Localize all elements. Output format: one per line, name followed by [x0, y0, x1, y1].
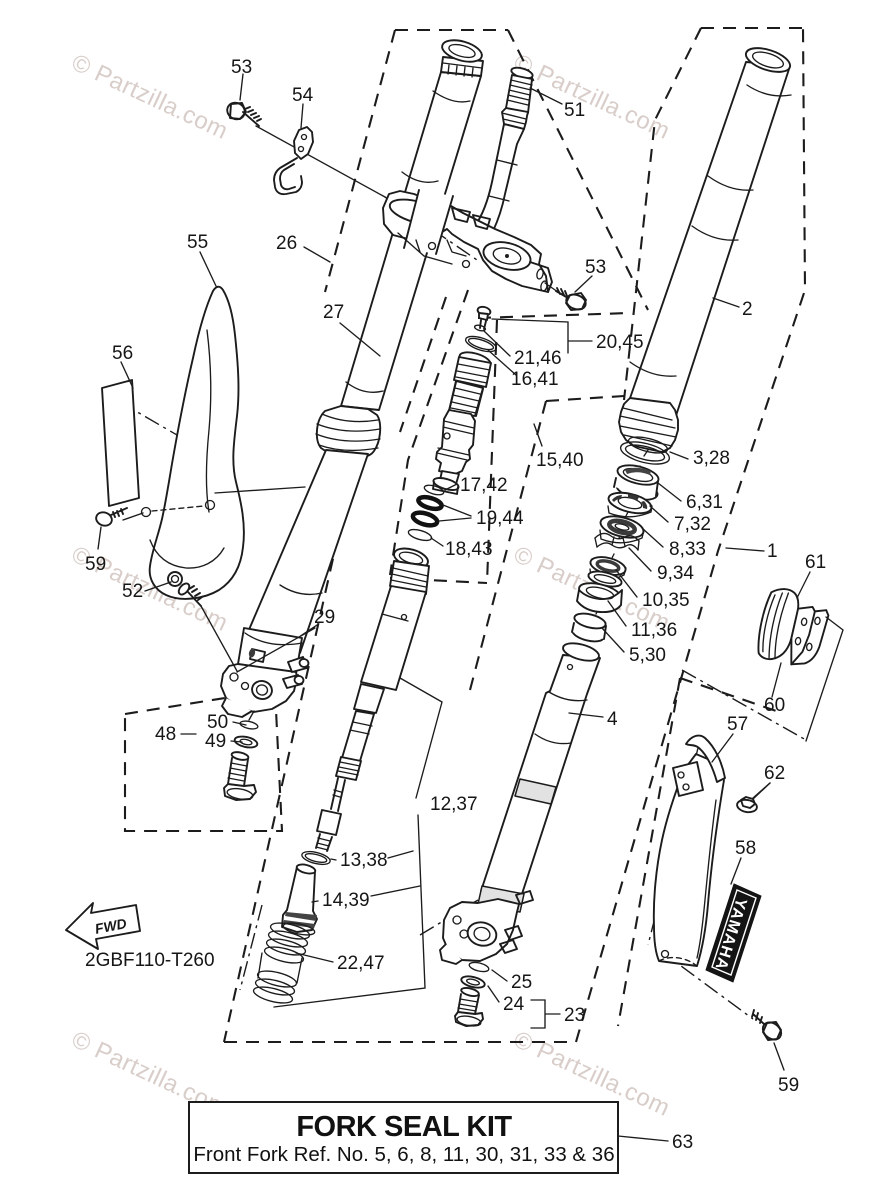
svg-text:15,40: 15,40: [536, 450, 584, 471]
svg-text:6,31: 6,31: [686, 492, 723, 513]
svg-text:59: 59: [778, 1075, 799, 1096]
svg-text:57: 57: [727, 714, 748, 735]
svg-text:58: 58: [735, 838, 756, 859]
svg-text:50: 50: [207, 712, 228, 733]
svg-text:17,42: 17,42: [460, 475, 508, 496]
svg-text:14,39: 14,39: [322, 890, 370, 911]
svg-text:2: 2: [742, 299, 753, 320]
svg-text:18,43: 18,43: [445, 539, 493, 560]
svg-text:19,44: 19,44: [476, 508, 524, 529]
svg-text:10,35: 10,35: [642, 590, 690, 611]
svg-text:1: 1: [767, 541, 778, 562]
svg-text:53: 53: [585, 257, 606, 278]
svg-text:63: 63: [672, 1132, 693, 1153]
svg-text:12,37: 12,37: [430, 794, 478, 815]
svg-text:29: 29: [314, 607, 335, 628]
svg-text:55: 55: [187, 232, 208, 253]
svg-text:21,46: 21,46: [514, 348, 562, 369]
svg-text:25: 25: [511, 972, 532, 993]
svg-text:8,33: 8,33: [669, 539, 706, 560]
svg-text:23: 23: [564, 1005, 585, 1026]
svg-text:61: 61: [805, 552, 826, 573]
svg-text:11,36: 11,36: [631, 620, 677, 641]
svg-text:56: 56: [112, 343, 133, 364]
svg-text:7,32: 7,32: [674, 514, 711, 535]
svg-text:53: 53: [231, 57, 252, 78]
svg-text:16,41: 16,41: [511, 369, 559, 390]
svg-text:26: 26: [276, 233, 297, 254]
svg-text:52: 52: [122, 581, 143, 602]
svg-text:48: 48: [155, 724, 176, 745]
svg-text:54: 54: [292, 85, 314, 106]
svg-text:22,47: 22,47: [337, 953, 385, 974]
svg-text:FORK SEAL KIT: FORK SEAL KIT: [296, 1111, 512, 1143]
svg-text:24: 24: [503, 994, 525, 1015]
svg-text:20,45: 20,45: [596, 332, 644, 353]
svg-text:4: 4: [607, 709, 618, 730]
svg-text:2GBF110-T260: 2GBF110-T260: [85, 950, 215, 971]
svg-text:60: 60: [764, 695, 785, 716]
svg-text:49: 49: [205, 731, 226, 752]
svg-text:62: 62: [764, 763, 785, 784]
svg-text:3,28: 3,28: [693, 448, 730, 469]
svg-text:5,30: 5,30: [629, 645, 666, 666]
svg-text:27: 27: [323, 302, 344, 323]
svg-text:51: 51: [564, 100, 585, 121]
svg-text:Front Fork Ref. No. 5, 6, 8, 1: Front Fork Ref. No. 5, 6, 8, 11, 30, 31,…: [193, 1143, 614, 1166]
svg-text:9,34: 9,34: [657, 563, 694, 584]
svg-text:13,38: 13,38: [340, 850, 388, 871]
svg-text:59: 59: [85, 554, 106, 575]
